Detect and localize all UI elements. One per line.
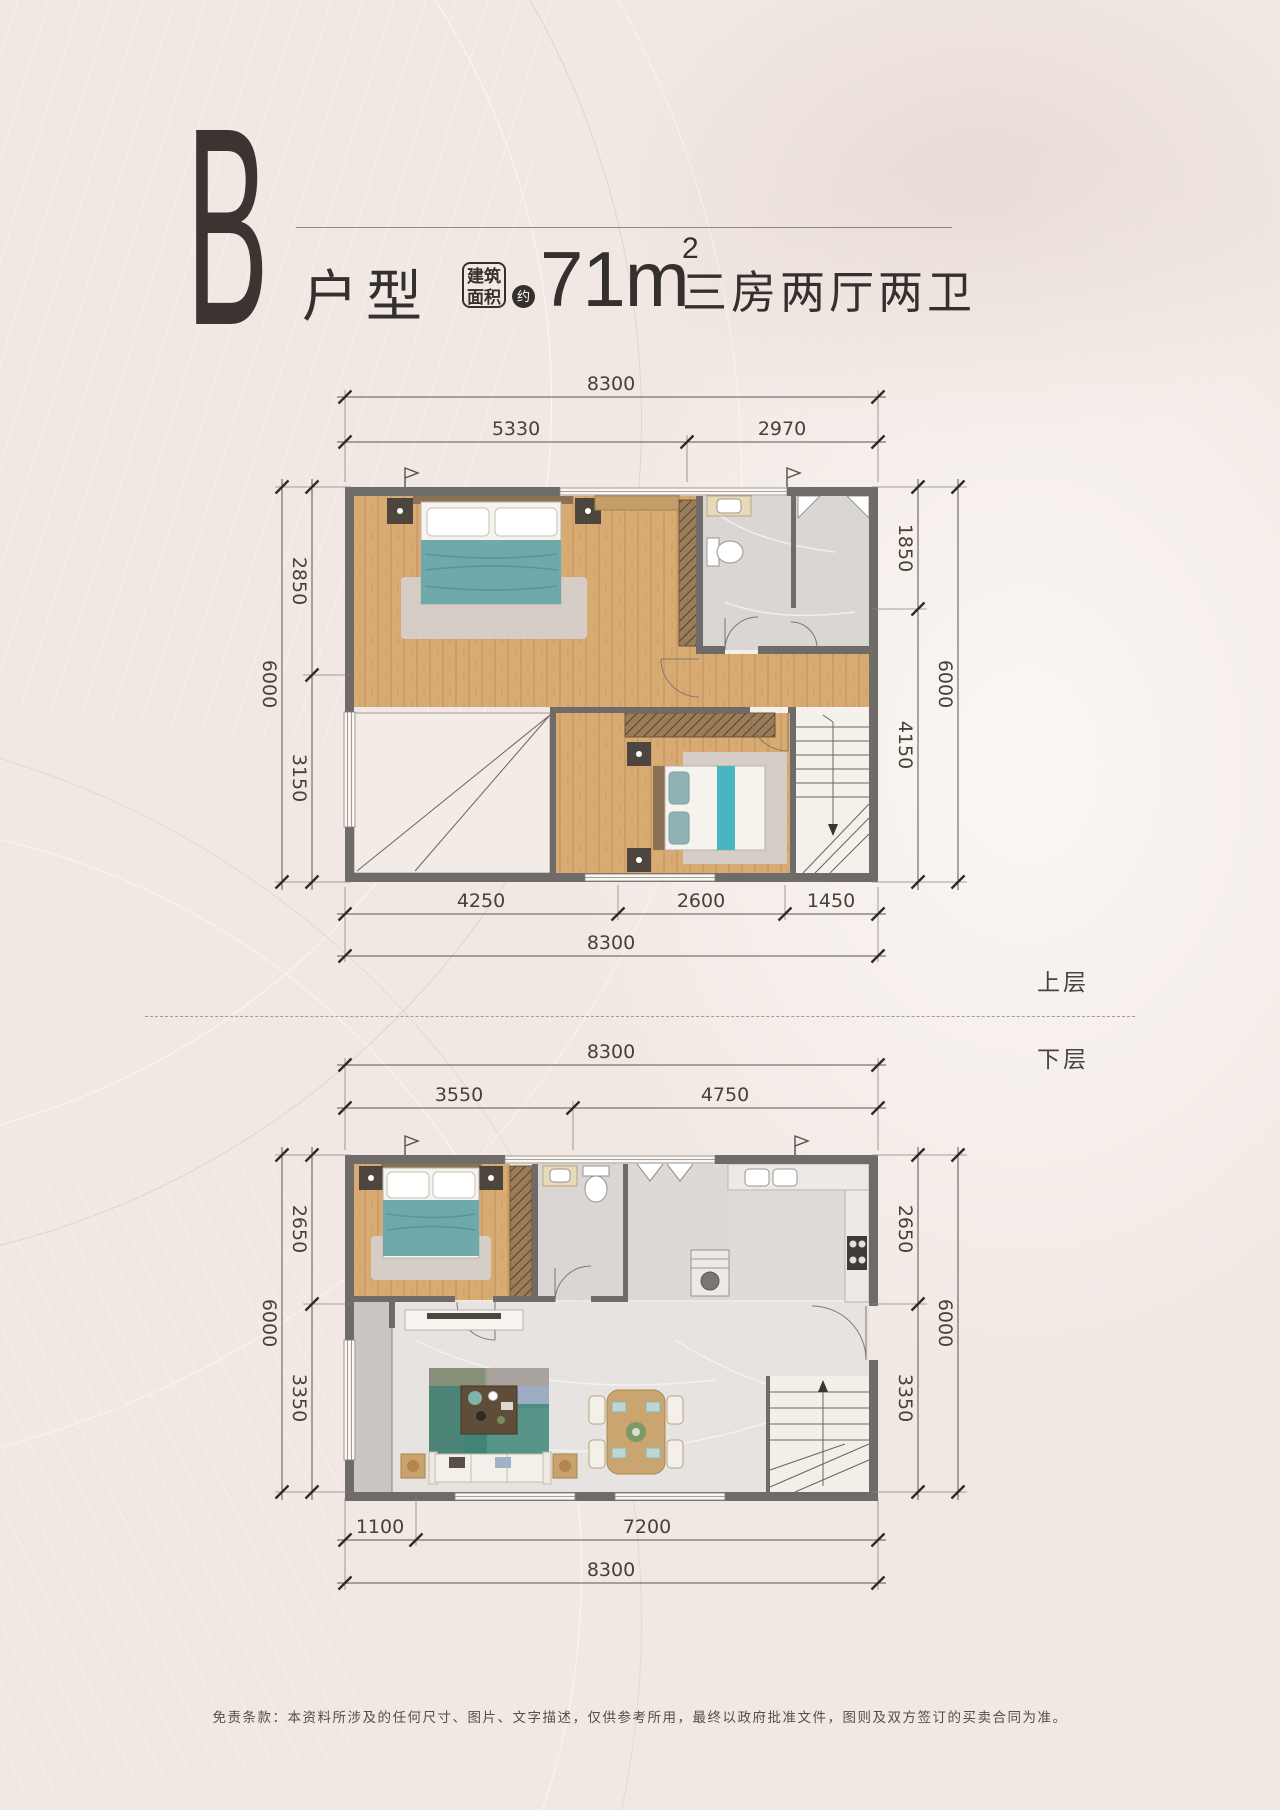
disclaimer-text: 免责条款：本资料所涉及的任何尺寸、图片、文字描述，仅供参考所用，最终以政府批准文…: [0, 1706, 1280, 1726]
wall-flag: [405, 468, 418, 487]
title-divider-line: [296, 227, 952, 228]
badge-line1: 建筑: [464, 266, 504, 287]
upper-floor-label: 上层: [1037, 963, 1089, 997]
wall-flag: [795, 1136, 808, 1155]
dim-top-total: 8300: [587, 373, 635, 395]
stair-floor: [770, 1376, 869, 1492]
sofa-pillow: [449, 1457, 465, 1468]
dim-bottom-b: 2600: [677, 890, 725, 912]
dim-bottom-total: 8300: [587, 932, 635, 954]
kitchen-sink: [773, 1169, 797, 1186]
unit-type-label: 户型: [302, 252, 430, 333]
dim-bottom-b: 7200: [623, 1516, 671, 1538]
toilet-tank: [583, 1166, 609, 1176]
dim-bottom-c: 1450: [807, 890, 855, 912]
dim-left-b: 3350: [288, 1374, 310, 1422]
upper-floor-plan: 8300 5330 2970 4250 2600 1450 8300 2850 …: [255, 372, 1000, 997]
sink: [717, 499, 741, 513]
lower-floor-label: 下层: [1037, 1040, 1089, 1074]
dim-right-a: 1850: [894, 524, 916, 572]
badge-line2: 面积: [464, 287, 504, 308]
dim-bottom-a: 4250: [457, 890, 505, 912]
bed-blanket: [421, 540, 561, 604]
dim-right-total: 6000: [934, 660, 956, 708]
dim-right-b: 3350: [894, 1374, 916, 1422]
unit-letter: B: [186, 86, 269, 368]
wardrobe: [510, 1166, 532, 1298]
pillow: [669, 812, 689, 844]
area-value: 71m: [540, 234, 689, 325]
dim-left-b: 3150: [288, 754, 310, 802]
floor-split-line: [145, 1016, 1135, 1017]
wall-flag: [405, 1136, 418, 1155]
pillow: [669, 772, 689, 804]
kitchen-sink: [745, 1169, 769, 1186]
bed-runner: [717, 766, 735, 850]
dim-top-b: 4750: [701, 1084, 749, 1106]
toilet-icon: [717, 541, 743, 563]
wall-flag: [787, 468, 800, 487]
dim-top-b: 2970: [758, 418, 806, 440]
tv: [427, 1313, 501, 1319]
toilet-icon: [585, 1176, 607, 1202]
dim-left-total: 6000: [258, 1299, 280, 1347]
balcony-floor: [354, 1302, 392, 1492]
stove: [847, 1236, 867, 1270]
void-area: [354, 713, 550, 873]
room-layout-text: 三房两厅两卫: [682, 256, 976, 321]
sink: [550, 1169, 570, 1182]
wardrobe: [625, 713, 775, 737]
sofa-pillow: [495, 1457, 511, 1468]
dim-bottom-a: 1100: [356, 1516, 404, 1538]
dim-right-b: 4150: [894, 721, 916, 769]
dim-right-total: 6000: [934, 1299, 956, 1347]
dresser: [595, 496, 679, 510]
dim-top-a: 5330: [492, 418, 540, 440]
approx-badge: 约: [512, 285, 535, 308]
brochure-page: B 户型 建筑 面积 约 71m 2 三房两厅两卫: [0, 0, 1280, 1810]
dim-left-total: 6000: [258, 660, 280, 708]
headboard: [653, 766, 665, 850]
dim-right-a: 2650: [894, 1205, 916, 1253]
dim-bottom-total: 8300: [587, 1559, 635, 1581]
built-area-badge: 建筑 面积: [462, 262, 506, 308]
lower-floor-plan: 8300 3550 4750 1100 7200 8300 2650 3350 …: [255, 1040, 1000, 1640]
dim-top-total: 8300: [587, 1041, 635, 1063]
dim-left-a: 2650: [288, 1205, 310, 1253]
dim-top-a: 3550: [435, 1084, 483, 1106]
dim-left-a: 2850: [288, 557, 310, 605]
